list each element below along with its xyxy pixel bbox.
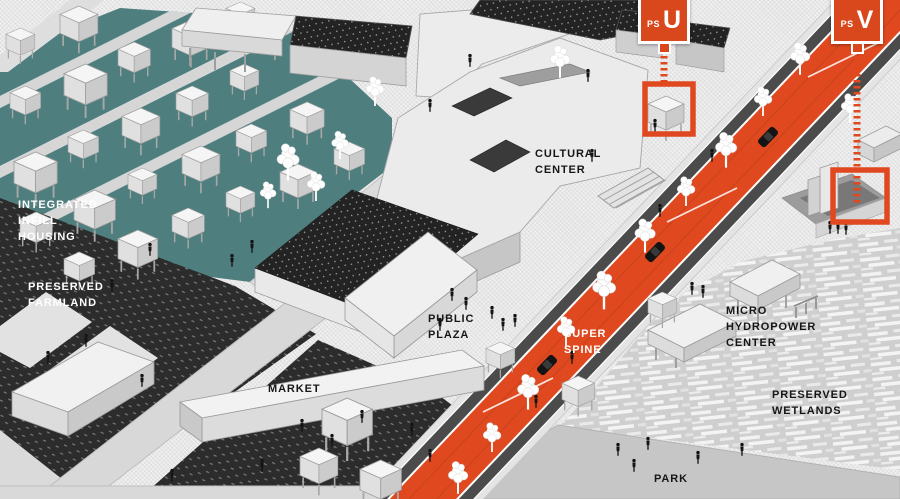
label-park: PARK [654,471,688,487]
ps-letter: V [857,6,874,35]
label-public-plaza: PUBLIC PLAZA [428,311,474,343]
label-line: WETLANDS [772,403,848,419]
person-icon [513,314,516,327]
label-preserved-wetlands: PRESERVED WETLANDS [772,387,848,419]
ps-v-flag: PS V [831,0,883,44]
label-line: HOUSING [18,229,98,245]
label-line: INTEGRATED [18,197,98,213]
label-line: MICRO [726,303,816,319]
marker-tab [658,44,671,54]
person-icon [653,119,656,132]
label-line: PLAZA [428,327,474,343]
ps-letter: U [663,6,681,35]
person-icon [501,318,504,331]
ps-prefix: PS [841,19,854,29]
label-line: PUBLIC [428,311,474,327]
label-line: CULTURAL [535,146,601,162]
marker-ps-u: PS U [638,0,690,54]
label-line: SUPER [564,326,606,342]
scene-canvas [0,0,900,499]
label-line: FARMLAND [28,295,104,311]
label-line: PRESERVED [772,387,848,403]
label-line: HYDROPOWER [726,319,816,335]
label-market: MARKET [268,381,320,397]
label-line: PARK [654,471,688,487]
ps-prefix: PS [647,19,660,29]
label-integrated-infill-housing: INTEGRATED INFILL HOUSING [18,197,98,245]
label-line: MARKET [268,381,320,397]
label-micro-hydropower-center: MICRO HYDROPOWER CENTER [726,303,816,351]
label-line: CENTER [726,335,816,351]
axonometric-site-diagram: INTEGRATED INFILL HOUSING PRESERVED FARM… [0,0,900,499]
marker-tab [851,44,864,54]
label-super-spine: SUPER SPINE [564,326,606,358]
label-line: CENTER [535,162,601,178]
right-edge-slab [858,126,900,162]
person-icon [464,297,467,310]
label-line: INFILL [18,213,98,229]
ps-u-flag: PS U [638,0,690,44]
person-icon [490,306,493,319]
label-cultural-center: CULTURAL CENTER [535,146,601,178]
label-line: PRESERVED [28,279,104,295]
label-preserved-farmland: PRESERVED FARMLAND [28,279,104,311]
marker-ps-v: PS V [831,0,883,54]
label-line: SPINE [564,342,606,358]
